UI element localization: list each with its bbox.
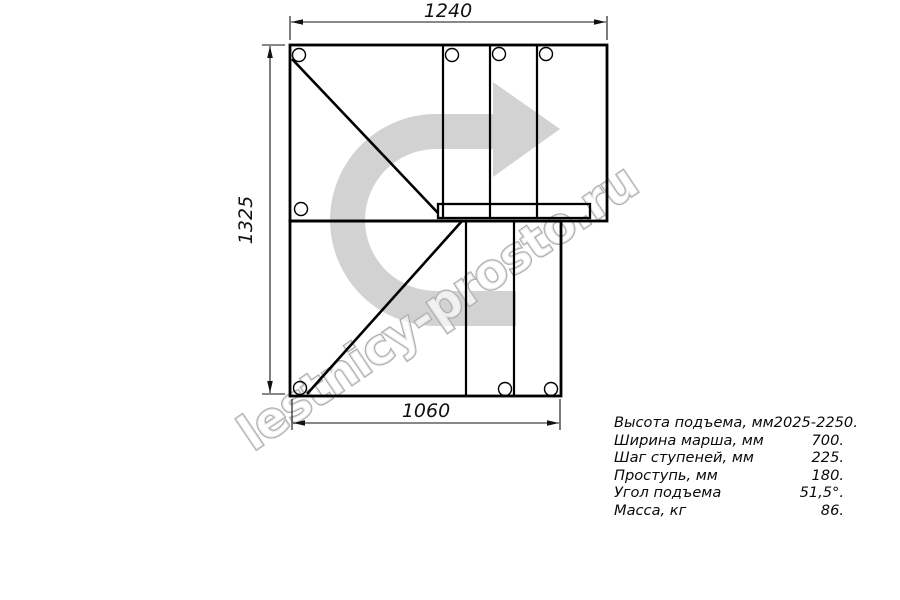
mounting-hole — [540, 48, 553, 61]
spec-value: 180. — [812, 467, 845, 485]
dim-arrow-right-icon — [547, 420, 559, 426]
spec-label: Масса, кг — [614, 502, 686, 520]
spec-row-mass: Масса, кг 86. — [614, 502, 844, 520]
dim-arrow-left-icon — [291, 19, 303, 25]
mounting-hole — [545, 383, 558, 396]
dim-arrow-right-icon — [594, 19, 606, 25]
spec-value: 51,5°. — [800, 484, 844, 502]
spec-value: 700. — [812, 432, 845, 450]
mounting-hole — [293, 49, 306, 62]
dimension-left-value: 1325 — [235, 196, 257, 244]
staircase-drawing-page: lestnicy-prosto.ru — [0, 0, 900, 600]
dimension-top: 1240 — [290, 0, 607, 40]
spec-label: Угол подъема — [614, 484, 721, 502]
spec-row-flight-width: Ширина марша, мм 700. — [614, 432, 844, 450]
mounting-hole — [499, 383, 512, 396]
dimension-left-lines — [262, 45, 285, 394]
spec-row-angle: Угол подъема 51,5°. — [614, 484, 844, 502]
spec-label: Шаг ступеней, мм — [614, 449, 754, 467]
dimension-top-value: 1240 — [424, 0, 472, 22]
spec-row-height: Высота подъема, мм 2025-2250. — [614, 414, 844, 432]
spec-value: 225. — [812, 449, 845, 467]
dimension-bottom-value: 1060 — [402, 400, 450, 422]
mounting-hole — [446, 49, 459, 62]
spec-value: 2025-2250. — [774, 414, 858, 432]
dim-arrow-up-icon — [267, 46, 273, 58]
spec-row-step-pitch: Шаг ступеней, мм 225. — [614, 449, 844, 467]
spec-label: Ширина марша, мм — [614, 432, 764, 450]
spec-label: Высота подъема, мм — [614, 414, 774, 432]
mounting-hole — [493, 48, 506, 61]
spec-table: Высота подъема, мм 2025-2250. Ширина мар… — [614, 414, 844, 519]
dimension-left: 1325 — [235, 45, 285, 394]
spec-value: 86. — [821, 502, 844, 520]
spec-label: Проступь, мм — [614, 467, 718, 485]
spec-row-tread: Проступь, мм 180. — [614, 467, 844, 485]
mounting-hole — [295, 203, 308, 216]
